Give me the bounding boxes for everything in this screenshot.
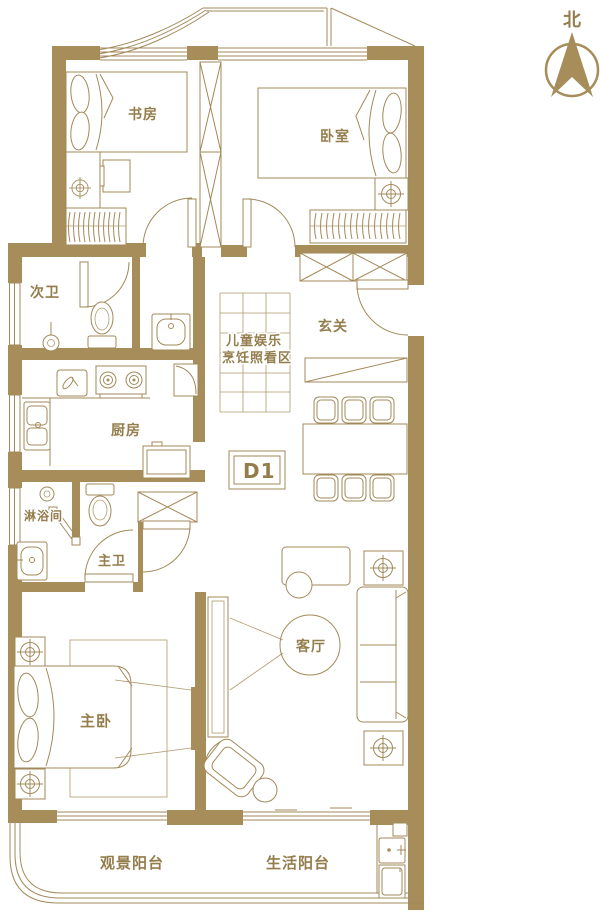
room-label-master-bath: 主卫 <box>98 553 126 569</box>
laundry-area <box>377 823 407 898</box>
toilet-icon <box>86 484 114 526</box>
desk-icon <box>97 160 130 192</box>
door-entry <box>357 280 408 335</box>
room-bedroom: 卧室 <box>258 88 408 243</box>
foyer-area: 玄关 <box>303 318 407 501</box>
cutting-board-icon <box>57 370 87 396</box>
room-second-bath: 次卫 <box>30 284 190 351</box>
play-area-label-1: 儿童娱乐 <box>225 333 282 349</box>
room-label-shower: 淋浴间 <box>24 508 63 523</box>
cabinet-icon <box>393 823 407 836</box>
side-table-lamp-top <box>364 551 403 585</box>
compass-north-label: 北 <box>563 10 582 31</box>
room-label-bedroom: 卧室 <box>320 128 350 145</box>
toilet-icon <box>88 302 116 348</box>
door-master-suite <box>143 521 190 572</box>
ac-platform-entry <box>300 253 407 281</box>
side-table-round-icon <box>253 778 277 802</box>
sink-icon <box>152 314 190 350</box>
chair-icon <box>314 475 338 501</box>
balconies: 观景阳台 生活阳台 <box>10 823 424 903</box>
door-bedroom <box>243 199 295 247</box>
play-area-label-2: 烹饪照看区 <box>222 350 292 366</box>
unit-label-box: D1 <box>229 451 285 489</box>
floorplan-page: 书房 卧室 <box>0 0 600 914</box>
room-master-bath: 主卫 <box>17 484 126 580</box>
room-label-master-bedroom: 主卧 <box>80 712 112 730</box>
chair-icon <box>314 397 338 423</box>
chair-icon <box>342 475 366 501</box>
bed-icon <box>66 72 187 152</box>
shoe-cabinet-icon <box>305 358 407 382</box>
nightstand-icon <box>375 178 408 210</box>
room-label-view-balcony: 观景阳台 <box>100 854 164 872</box>
compass-icon: 北 <box>546 10 598 97</box>
window-left-strips <box>8 283 22 545</box>
sink-icon <box>17 542 47 580</box>
duct-shaft-bath <box>138 492 197 522</box>
nightstand-icon <box>15 637 45 667</box>
dining-set <box>303 397 407 501</box>
bed-icon <box>14 666 132 768</box>
shower-icon <box>40 487 54 501</box>
chair-icon <box>370 397 394 423</box>
shower-icon <box>43 322 59 351</box>
room-study: 书房 <box>66 72 187 245</box>
window-top-study <box>100 48 187 60</box>
floorplan-drawing: 书房 卧室 <box>0 0 600 914</box>
door-second-bath <box>80 262 129 307</box>
tv-viewing-lines <box>230 618 283 690</box>
dining-table-icon <box>303 424 407 474</box>
wardrobe-icon <box>66 208 126 245</box>
fridge-icon <box>143 442 190 478</box>
corner-cabinet-icon <box>174 364 198 396</box>
room-label-study: 书房 <box>128 106 158 123</box>
room-kitchen: 厨房 <box>22 364 198 478</box>
chair-icon <box>370 475 394 501</box>
duct-shaft-center <box>200 62 221 247</box>
room-label-kitchen: 厨房 <box>111 422 141 439</box>
room-shower: 淋浴间 <box>24 487 63 523</box>
room-label-living: 客厅 <box>295 638 326 655</box>
balcony-railing <box>10 823 424 903</box>
washer-icon <box>379 865 405 898</box>
kitchen-sink-icon <box>24 402 50 450</box>
tv-stand-icon <box>208 597 228 737</box>
door-study <box>143 198 196 247</box>
chair-icon <box>342 397 366 423</box>
sofa-icon <box>357 587 408 722</box>
room-label-service-balcony: 生活阳台 <box>266 854 330 872</box>
room-label-foyer: 玄关 <box>318 318 348 335</box>
window-top-bedroom <box>218 48 367 60</box>
nightstand-icon <box>15 769 45 799</box>
side-table-lamp-bottom <box>364 731 403 765</box>
console-table-icon <box>282 547 350 598</box>
room-label-second-bath: 次卫 <box>30 284 60 301</box>
unit-label: D1 <box>243 459 276 483</box>
play-area-grid: 儿童娱乐 烹饪照看区 <box>220 293 292 412</box>
cabinet-icon <box>66 152 100 208</box>
laundry-sink-icon <box>379 838 406 863</box>
stove-icon <box>96 366 146 398</box>
wardrobe-icon <box>310 210 406 243</box>
room-living: 客厅 <box>198 547 408 802</box>
room-master-bedroom: 主卧 <box>14 637 199 799</box>
